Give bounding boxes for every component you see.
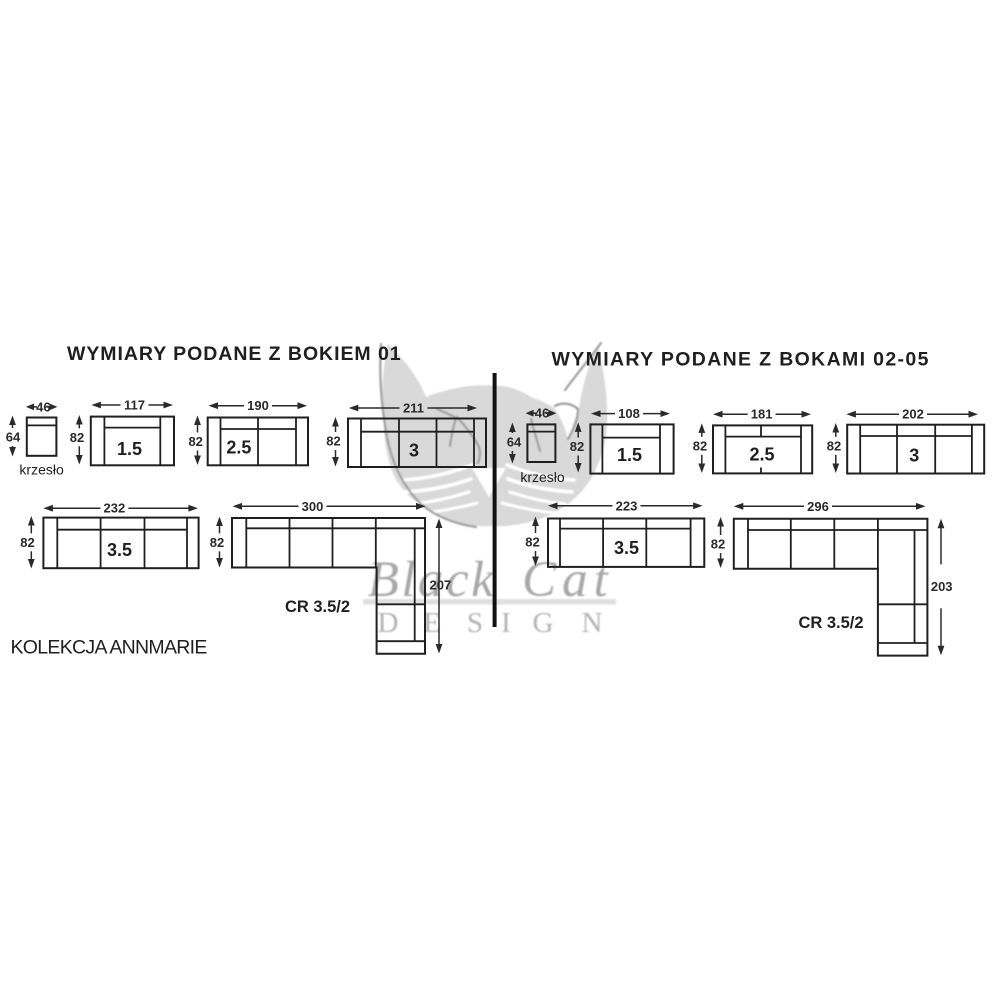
svg-text:krzesło: krzesło (520, 469, 565, 485)
svg-text:82: 82 (570, 439, 584, 454)
svg-text:300: 300 (302, 499, 324, 514)
svg-text:82: 82 (326, 434, 340, 449)
svg-text:82: 82 (827, 438, 841, 453)
svg-text:46: 46 (535, 406, 549, 421)
svg-text:64: 64 (6, 430, 21, 445)
svg-text:46: 46 (36, 399, 50, 414)
svg-text:82: 82 (20, 535, 34, 550)
svg-text:CR 3.5/2: CR 3.5/2 (798, 614, 863, 632)
svg-text:krzesło: krzesło (19, 462, 64, 478)
svg-text:G: G (533, 607, 554, 639)
svg-text:82: 82 (525, 535, 539, 550)
svg-text:3: 3 (909, 446, 919, 466)
svg-text:108: 108 (618, 406, 640, 421)
svg-text:64: 64 (507, 435, 522, 450)
svg-text:190: 190 (247, 398, 269, 413)
svg-text:82: 82 (210, 535, 224, 550)
svg-text:202: 202 (902, 407, 924, 422)
svg-text:D: D (378, 607, 399, 639)
svg-text:82: 82 (711, 537, 725, 552)
svg-text:296: 296 (807, 499, 829, 514)
svg-text:1.5: 1.5 (617, 445, 642, 465)
svg-text:3.5: 3.5 (614, 538, 639, 558)
svg-text:232: 232 (104, 501, 126, 516)
svg-text:207: 207 (430, 578, 452, 593)
svg-text:82: 82 (70, 430, 84, 445)
svg-text:82: 82 (188, 434, 202, 449)
svg-text:82: 82 (693, 438, 707, 453)
svg-text:2.5: 2.5 (226, 438, 251, 458)
svg-text:211: 211 (403, 401, 424, 416)
svg-text:203: 203 (931, 579, 953, 594)
svg-text:WYMIARY PODANE Z BOKIEM 01: WYMIARY PODANE Z BOKIEM 01 (67, 343, 402, 365)
svg-text:2.5: 2.5 (749, 445, 774, 465)
svg-text:223: 223 (616, 498, 638, 513)
svg-text:N: N (582, 607, 603, 639)
svg-text:3.5: 3.5 (107, 540, 132, 560)
svg-text:181: 181 (751, 407, 773, 422)
svg-text:I: I (501, 607, 511, 639)
svg-text:S: S (467, 607, 483, 639)
svg-text:3: 3 (409, 441, 419, 461)
svg-text:1.5: 1.5 (117, 439, 142, 459)
svg-text:CR 3.5/2: CR 3.5/2 (285, 598, 350, 616)
svg-text:117: 117 (124, 398, 145, 413)
svg-text:KOLEKCJA ANNMARIE: KOLEKCJA ANNMARIE (11, 637, 208, 659)
svg-text:WYMIARY PODANE Z BOKAMI 02-05: WYMIARY PODANE Z BOKAMI 02-05 (552, 349, 930, 371)
